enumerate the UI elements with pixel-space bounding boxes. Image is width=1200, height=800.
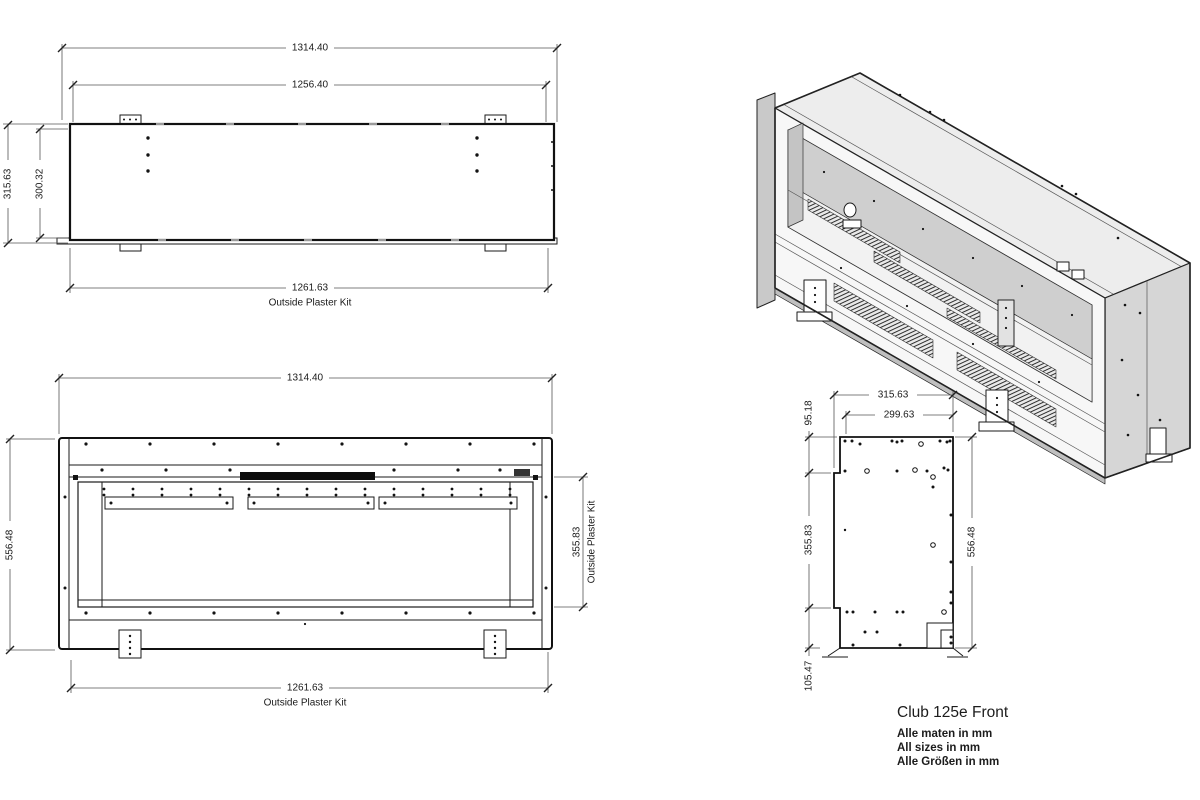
side-view-top-offset-label: 95.18 [804, 400, 815, 425]
top-view: 1314.40 1256.40 315.63 300.32 1261.63 Ou… [2, 42, 561, 309]
top-view-plaster-kit-label: Outside Plaster Kit [269, 298, 352, 309]
top-view-overall-depth-label: 315.63 [3, 168, 14, 199]
front-view-opening-height-label: 355.83 [572, 526, 583, 557]
mounting-strip-2 [248, 497, 374, 509]
front-view: 1314.40 556.48 355.83 Outside Plaster Ki… [4, 372, 598, 709]
isometric-view [757, 73, 1190, 484]
top-view-overall-depth: 315.63 [2, 160, 14, 208]
side-view-feet [822, 648, 968, 657]
iso-right-face [1105, 263, 1190, 478]
front-view-height: 556.48 [4, 521, 16, 569]
mounting-strip-3 [379, 497, 517, 509]
top-view-plaster-width-label: 1261.63 [292, 283, 329, 294]
top-view-tab-left [120, 244, 141, 251]
top-view-body-depth: 300.32 [34, 160, 46, 208]
top-view-overall-width-label: 1314.40 [292, 43, 329, 54]
top-view-body-width-label: 1256.40 [292, 80, 329, 91]
side-view-body-depth-label: 299.63 [884, 410, 915, 421]
front-view-plaster-kit-vertical: Outside Plaster Kit [587, 500, 598, 583]
front-view-plaster-kit-label: Outside Plaster Kit [264, 698, 347, 709]
side-view-bottom-offset: 105.47 [803, 656, 815, 696]
top-view-body-depth-label: 300.32 [35, 168, 46, 199]
corner-fastener-right [533, 475, 538, 480]
side-view-bottom-offset-label: 105.47 [804, 660, 815, 691]
iso-cable-gland [844, 203, 856, 217]
top-view-tab-right [485, 244, 506, 251]
iso-foot-right [1150, 428, 1166, 456]
iso-foot-left-flange [797, 312, 832, 321]
iso-back-panel [757, 93, 775, 308]
iso-clip-2 [1072, 270, 1084, 279]
front-view-plaster-width-label: 1261.63 [287, 683, 324, 694]
iso-foot-left [804, 280, 826, 314]
side-view: 315.63 299.63 95.18 355.83 105.47 556.48 [803, 389, 978, 696]
side-view-height-label: 556.48 [967, 526, 978, 557]
iso-interior-left-wall [788, 123, 803, 227]
side-view-opening-height-label: 355.83 [804, 524, 815, 555]
control-module [514, 469, 530, 476]
front-view-opening-height: 355.83 [572, 526, 583, 557]
corner-fastener-left [73, 475, 78, 480]
drawing-title: Club 125e Front [897, 704, 1009, 721]
units-note-nl: Alle maten in mm [897, 728, 992, 740]
flame-effect-strip [240, 472, 375, 480]
side-view-opening-height: 355.83 [803, 516, 815, 564]
units-note-en: All sizes in mm [897, 742, 980, 754]
side-view-body [834, 437, 953, 648]
caption-block: Club 125e Front Alle maten in mm All siz… [897, 704, 1009, 768]
front-view-overall-width-label: 1314.40 [287, 373, 324, 384]
units-note-de: Alle Größen in mm [897, 756, 999, 768]
iso-junction-box [843, 220, 861, 228]
iso-center-standoff [998, 300, 1014, 346]
front-view-plaster-kit-vertical-label: Outside Plaster Kit [587, 500, 598, 583]
iso-foot-mid [986, 390, 1008, 424]
iso-clip-1 [1057, 262, 1069, 271]
front-view-height-label: 556.48 [5, 529, 16, 560]
side-view-notch-inner [941, 630, 953, 648]
side-view-height: 556.48 [966, 518, 978, 566]
mounting-strip-1 [105, 497, 233, 509]
side-view-top-offset: 95.18 [803, 395, 815, 431]
technical-drawing-sheet: 1314.40 1256.40 315.63 300.32 1261.63 Ou… [0, 0, 1200, 800]
top-view-body [70, 124, 554, 240]
side-view-depth-label: 315.63 [878, 390, 909, 401]
